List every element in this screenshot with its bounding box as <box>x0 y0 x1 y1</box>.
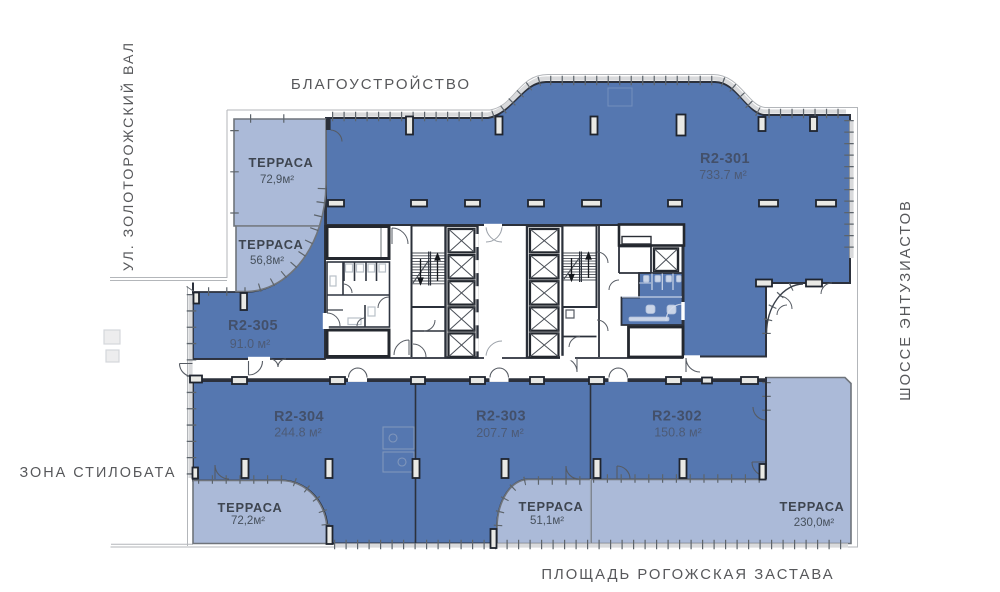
svg-text:R2-302: R2-302 <box>652 409 702 425</box>
svg-text:91.0 м²: 91.0 м² <box>230 337 271 351</box>
svg-text:R2-303: R2-303 <box>476 409 526 425</box>
svg-text:ТЕРРАСА: ТЕРРАСА <box>218 500 283 515</box>
svg-text:244.8 м²: 244.8 м² <box>274 426 322 440</box>
svg-text:733.7 м²: 733.7 м² <box>699 168 747 182</box>
svg-text:БЛАГОУСТРОЙСТВО: БЛАГОУСТРОЙСТВО <box>291 75 471 93</box>
svg-text:72,9м²: 72,9м² <box>260 174 294 186</box>
svg-text:207.7 м²: 207.7 м² <box>476 426 524 440</box>
svg-text:72,2м²: 72,2м² <box>231 515 265 527</box>
svg-text:ЗОНА СТИЛОБАТА: ЗОНА СТИЛОБАТА <box>20 465 177 481</box>
svg-text:ТЕРРАСА: ТЕРРАСА <box>239 237 304 252</box>
svg-text:150.8 м²: 150.8 м² <box>654 426 702 440</box>
svg-text:УЛ. ЗОЛОТОРОЖСКИЙ ВАЛ: УЛ. ЗОЛОТОРОЖСКИЙ ВАЛ <box>119 41 137 271</box>
svg-text:ТЕРРАСА: ТЕРРАСА <box>249 155 314 170</box>
svg-text:ШОССЕ ЭНТУЗИАСТОВ: ШОССЕ ЭНТУЗИАСТОВ <box>898 199 914 401</box>
svg-text:230,0м²: 230,0м² <box>794 517 835 529</box>
svg-text:R2-304: R2-304 <box>274 409 324 425</box>
svg-text:ТЕРРАСА: ТЕРРАСА <box>519 499 584 514</box>
svg-text:56,8м²: 56,8м² <box>250 255 284 267</box>
svg-text:R2-305: R2-305 <box>228 318 278 334</box>
svg-text:ТЕРРАСА: ТЕРРАСА <box>780 499 845 514</box>
svg-text:51,1м²: 51,1м² <box>530 515 564 527</box>
svg-text:R2-301: R2-301 <box>700 151 750 167</box>
svg-text:ПЛОЩАДЬ РОГОЖСКАЯ ЗАСТАВА: ПЛОЩАДЬ РОГОЖСКАЯ ЗАСТАВА <box>541 567 834 583</box>
